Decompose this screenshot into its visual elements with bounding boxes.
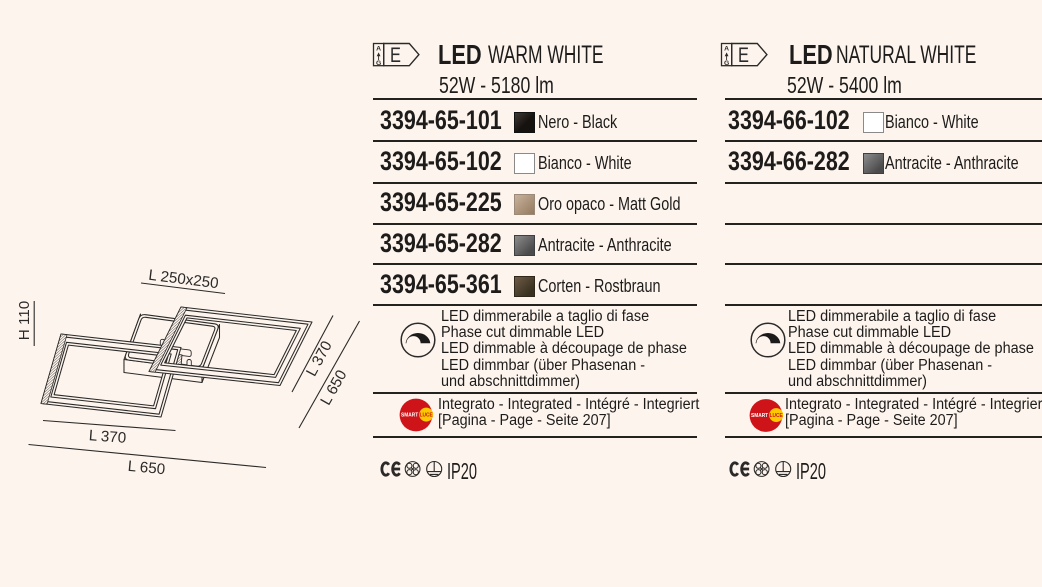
svg-text:L 370: L 370 xyxy=(303,338,336,379)
svg-text:SMART: SMART xyxy=(751,413,769,420)
svg-text:LUCE: LUCE xyxy=(770,413,783,420)
svg-text:LUCE: LUCE xyxy=(420,412,433,419)
svg-text:SMART: SMART xyxy=(401,412,419,419)
svg-text:A: A xyxy=(724,46,729,53)
svg-text:A: A xyxy=(376,46,381,53)
svg-text:G: G xyxy=(376,60,381,67)
svg-text:E: E xyxy=(738,43,749,66)
svg-text:E: E xyxy=(390,43,401,66)
svg-text:H 110: H 110 xyxy=(16,301,33,340)
svg-text:L 370: L 370 xyxy=(88,427,127,447)
svg-text:G: G xyxy=(724,60,729,67)
svg-text:L 650: L 650 xyxy=(127,458,166,478)
